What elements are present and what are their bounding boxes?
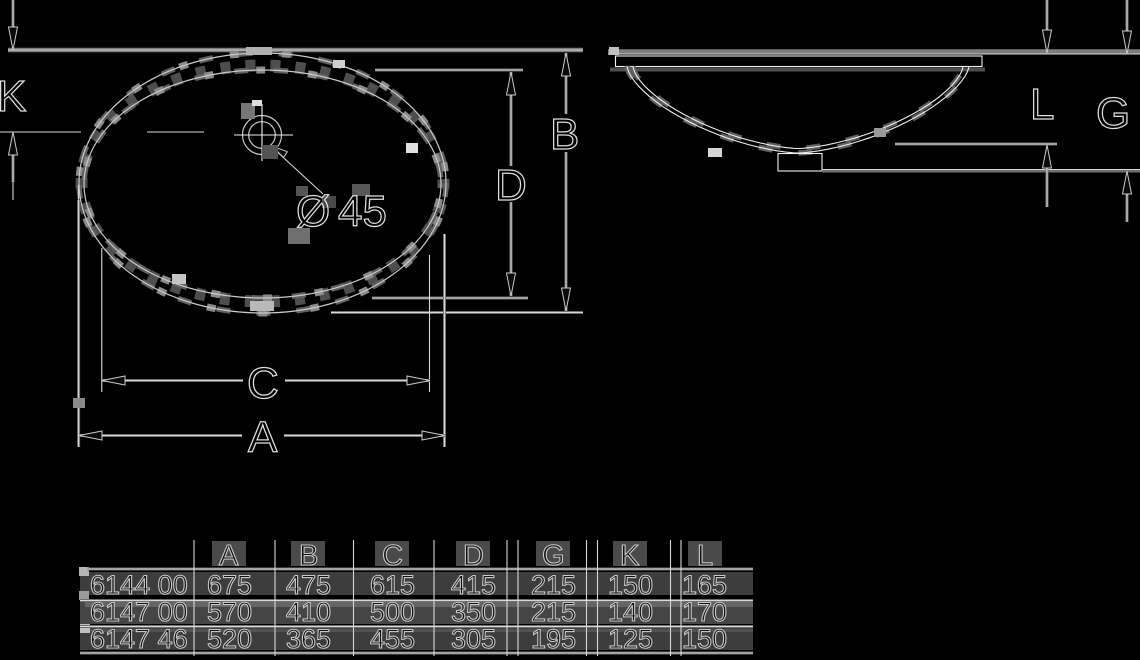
svg-text:415: 415	[451, 570, 496, 600]
svg-text:475: 475	[286, 570, 331, 600]
svg-text:410: 410	[286, 597, 331, 627]
svg-text:D: D	[463, 540, 484, 572]
svg-text:500: 500	[370, 597, 415, 627]
svg-text:520: 520	[207, 624, 252, 654]
svg-text:215: 215	[531, 597, 576, 627]
svg-text:365: 365	[286, 624, 331, 654]
svg-text:A: A	[219, 540, 239, 572]
svg-text:G: G	[1096, 89, 1130, 138]
svg-text:150: 150	[682, 624, 727, 654]
svg-text:6147 46: 6147 46	[90, 624, 188, 654]
svg-text:45: 45	[338, 187, 387, 236]
svg-text:C: C	[382, 540, 403, 572]
svg-text:215: 215	[531, 570, 576, 600]
svg-text:A: A	[248, 413, 278, 462]
svg-text:165: 165	[682, 570, 727, 600]
svg-text:170: 170	[682, 597, 727, 627]
svg-text:D: D	[495, 161, 527, 210]
svg-text:6144 00: 6144 00	[90, 570, 188, 600]
svg-text:675: 675	[207, 570, 252, 600]
svg-text:L: L	[697, 540, 713, 572]
svg-text:K: K	[620, 540, 640, 572]
svg-text:Ø: Ø	[296, 187, 330, 236]
svg-text:G: G	[542, 540, 565, 572]
svg-text:350: 350	[451, 597, 496, 627]
svg-text:455: 455	[370, 624, 415, 654]
svg-text:L: L	[1030, 80, 1054, 129]
svg-text:B: B	[550, 110, 579, 159]
svg-text:125: 125	[608, 624, 653, 654]
svg-text:615: 615	[370, 570, 415, 600]
svg-text:570: 570	[207, 597, 252, 627]
svg-text:C: C	[247, 359, 279, 408]
svg-text:150: 150	[608, 570, 653, 600]
svg-text:140: 140	[608, 597, 653, 627]
svg-text:6147 00: 6147 00	[90, 597, 188, 627]
svg-text:195: 195	[531, 624, 576, 654]
svg-text:K: K	[0, 72, 26, 121]
svg-text:305: 305	[451, 624, 496, 654]
svg-text:B: B	[299, 540, 318, 572]
